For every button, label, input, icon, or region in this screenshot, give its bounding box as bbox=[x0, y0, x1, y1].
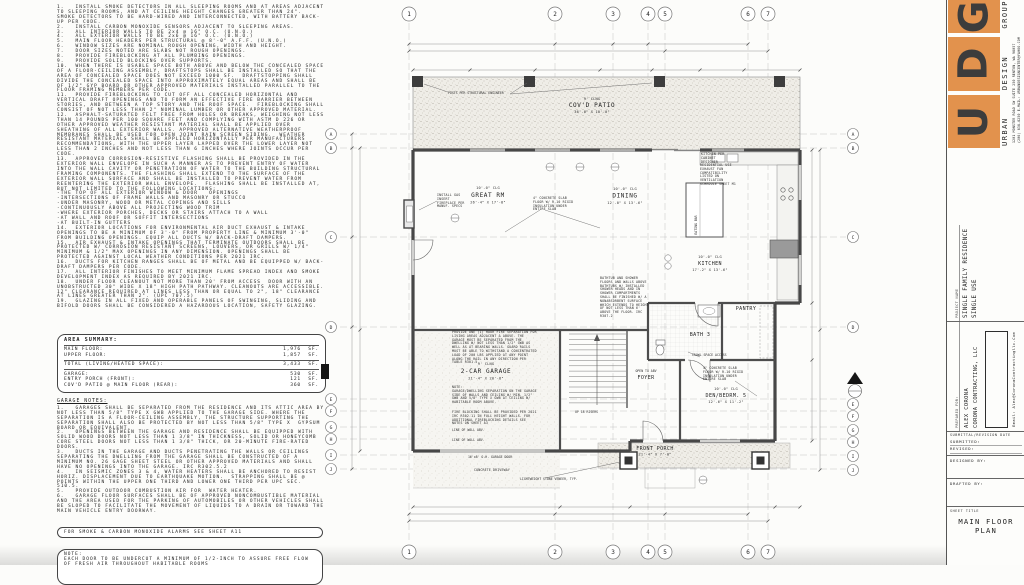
stone-note: LIGHTWEIGHT STONE VENEER, TYP. bbox=[520, 477, 578, 481]
fill-line bbox=[950, 453, 1022, 454]
porch-dims: 21'-4" X 7'-0" bbox=[638, 453, 671, 457]
bath3-label: BATH 3 bbox=[690, 332, 710, 338]
svg-text:5: 5 bbox=[663, 11, 667, 18]
line-abv-2: LINE OF WALL ABV. bbox=[452, 438, 485, 442]
svg-text:F: F bbox=[330, 409, 333, 415]
title-block-inner-line bbox=[959, 225, 960, 432]
svg-text:D: D bbox=[330, 325, 333, 331]
svg-text:4: 4 bbox=[646, 11, 650, 18]
posts-note: POSTS PER STRUCTURAL ENGINEER bbox=[448, 91, 504, 95]
svg-text:1: 1 bbox=[407, 11, 411, 18]
svg-text:E: E bbox=[330, 397, 333, 403]
submitted-label: SUBMITTED: bbox=[950, 439, 980, 444]
grid-bubbles-left: A B C D E F G H I J bbox=[326, 129, 337, 475]
garage-notes-panel: GARAGE NOTES: 1. GARAGES SHALL BE SEPARA… bbox=[57, 400, 325, 515]
pantry-label: PANTRY bbox=[736, 306, 756, 312]
dining-dims: 12'-0" X 13'-6" bbox=[607, 201, 642, 205]
svg-text:C: C bbox=[852, 235, 855, 241]
svg-text:J: J bbox=[330, 467, 333, 473]
logo-letter-d: D bbox=[951, 47, 997, 80]
dining-clg: 10'-0" CLG bbox=[613, 187, 637, 191]
stamp-box bbox=[985, 331, 1008, 428]
sheet-title-label: SHEET TITLE bbox=[950, 509, 979, 513]
logo-square-g: G bbox=[948, 0, 1000, 33]
svg-text:I: I bbox=[852, 454, 855, 460]
svg-text:7: 7 bbox=[766, 549, 770, 556]
svg-text:B: B bbox=[852, 146, 855, 152]
patio-clg-label: 9' CLNG bbox=[584, 97, 601, 101]
kitchen-clg: 10'-0" CLG bbox=[698, 255, 722, 259]
divider bbox=[64, 345, 319, 346]
fireplace bbox=[404, 200, 414, 228]
general-notes-text: 1. INSTALL SMOKE DETECTORS IN ALL SLEEPI… bbox=[57, 6, 325, 310]
den-clg: 10'-0" CLG bbox=[714, 387, 738, 391]
area-row: UPPER FLOOR: 1,857 SF. bbox=[64, 353, 319, 359]
garage-door bbox=[440, 450, 545, 452]
kitchen-label: KITCHEN bbox=[698, 261, 722, 267]
project-use: SINGLE USE bbox=[972, 258, 978, 318]
client-name: ALEX CORONA bbox=[964, 348, 970, 428]
divider bbox=[947, 506, 1024, 507]
svg-text:2: 2 bbox=[553, 11, 557, 18]
area-total-row: TOTAL (LIVING/HEATED SPACE): 3,433 SF. bbox=[64, 362, 319, 368]
general-notes-panel: 1. INSTALL SMOKE DETECTORS IN ALL SLEEPI… bbox=[57, 6, 325, 310]
area-summary-box: AREA SUMMARY: MAIN FLOOR: 1,976 SF. UPPE… bbox=[57, 334, 326, 393]
svg-text:A: A bbox=[852, 132, 855, 138]
grid-bubbles-top: 1 2 3 4 5 6 7 bbox=[402, 7, 775, 21]
svg-text:J: J bbox=[852, 468, 855, 474]
section-cut-marker bbox=[321, 364, 329, 379]
pantry-shelves bbox=[760, 306, 773, 358]
svg-text:D: D bbox=[852, 325, 855, 331]
grid-bubbles-right: A B C D E F G H I J bbox=[848, 129, 859, 476]
greatrm-clg: 10'-0" CLG bbox=[476, 186, 500, 190]
garage-notes-title: GARAGE NOTES: bbox=[57, 400, 325, 405]
garage-door-note: 16'x8' O.H. GARAGE DOOR bbox=[468, 455, 512, 459]
den-label: DEN/BEDRM. 5 bbox=[706, 393, 747, 399]
logo-address-2: (206) 838-8250 E-MAIL: URBANDESIGNCENTER… bbox=[1017, 0, 1021, 143]
garage-label: 2-CAR GARAGE bbox=[461, 368, 512, 375]
garage-clg: 9' CLNG bbox=[478, 362, 495, 366]
foyer-note: OPEN TO ABV bbox=[635, 369, 656, 373]
submittal-label: SUBMITTAL/REVISION DATE bbox=[950, 433, 1011, 437]
svg-text:3: 3 bbox=[611, 11, 615, 18]
svg-text:6: 6 bbox=[746, 549, 750, 556]
svg-text:2: 2 bbox=[553, 549, 557, 556]
project-name: SINGLE FAMILY RESIDENCE bbox=[963, 222, 969, 318]
kitchen-island bbox=[686, 183, 723, 237]
divider bbox=[947, 478, 1024, 479]
walkway bbox=[645, 468, 695, 488]
svg-text:H: H bbox=[852, 440, 855, 446]
client-company: CORONA CONTRACTING, LLC bbox=[973, 324, 979, 428]
svg-text:1: 1 bbox=[407, 549, 411, 556]
eating-bar-label: EATING BAR bbox=[694, 215, 698, 234]
greatrm-label: GREAT RM bbox=[471, 192, 505, 199]
logo-square-u: U bbox=[948, 95, 1000, 148]
sheet-title: MAIN FLOOR PLAN bbox=[947, 518, 1024, 535]
section-marker-right bbox=[847, 372, 863, 398]
logo-letter-u: U bbox=[951, 105, 997, 137]
client-email: Email: Alex@CoronaContractingllc.Com bbox=[1011, 317, 1016, 427]
kitchen-dims: 17'-2" X 13'-6" bbox=[692, 268, 727, 272]
svg-text:G: G bbox=[330, 425, 333, 431]
revised-label: REVISED: bbox=[950, 446, 974, 451]
svg-text:7: 7 bbox=[766, 11, 770, 18]
area-summary-title: AREA SUMMARY: bbox=[64, 337, 319, 343]
patio-label: COV'D PATIO bbox=[569, 102, 615, 109]
garage-slab bbox=[415, 332, 558, 449]
area-row: COV'D PATIO @ MAIN FLOOR (REAR): 360 SF. bbox=[64, 383, 319, 389]
greatrm-dims: 26'-4" X 17'-8" bbox=[470, 201, 505, 205]
svg-text:B: B bbox=[330, 146, 333, 152]
project-name-label: PROJECT NAME bbox=[955, 260, 959, 318]
svg-text:6: 6 bbox=[746, 11, 750, 18]
svg-text:E: E bbox=[852, 402, 855, 408]
porch-label: FRONT PORCH bbox=[636, 446, 674, 452]
svg-text:C: C bbox=[330, 235, 333, 241]
drafted-by-label: DRAFTED BY: bbox=[950, 481, 983, 486]
alarm-note-text: FOR SMOKE & CARBON MONOXIDE ALARMS SEE S… bbox=[64, 530, 316, 535]
designed-by-label: DESIGNED BY: bbox=[950, 458, 987, 463]
alarm-note-box: FOR SMOKE & CARBON MONOXIDE ALARMS SEE S… bbox=[57, 527, 323, 538]
crawl-note: CRAWL SPACE ACCESS bbox=[692, 353, 727, 357]
svg-text:5: 5 bbox=[663, 549, 667, 556]
undercut-note-box: NOTE: EACH DOOR TO BE UNDERCUT A MINIMUM… bbox=[57, 549, 323, 585]
foyer-label: FOYER bbox=[637, 375, 655, 381]
line-abv-1: LINE OF WALL ABV. bbox=[452, 428, 485, 432]
svg-text:I: I bbox=[330, 453, 333, 459]
stairs bbox=[569, 334, 626, 405]
up-risers-note: UP 18 RISERS bbox=[575, 410, 598, 414]
svg-text:3: 3 bbox=[611, 549, 615, 556]
svg-text:H: H bbox=[330, 437, 333, 443]
floor-plan-drawing: 1 2 3 4 5 6 7 1 2 3 4 5 6 7 A B C bbox=[318, 0, 950, 565]
title-block: G D U URBAN DESIGN GROUP 1201 MONSTER RO… bbox=[946, 0, 1024, 565]
svg-text:4: 4 bbox=[646, 549, 650, 556]
logo-address-1: 1201 MONSTER ROAD SW SUITE 250 RENTON, W… bbox=[1012, 0, 1016, 143]
den-dims: 12'-6" X 11'-2" bbox=[708, 400, 743, 404]
divider bbox=[947, 455, 1024, 456]
patio-dims: 36'-0" X 10'-0" bbox=[574, 110, 609, 114]
garage-notes-text: 1. GARAGES SHALL BE SEPARATED FROM THE R… bbox=[57, 407, 325, 515]
logo-letter-g: G bbox=[951, 0, 997, 33]
svg-text:A: A bbox=[330, 132, 333, 138]
svg-text:F: F bbox=[852, 414, 855, 420]
garage-dims: 21'-4" X 20'-8" bbox=[468, 377, 503, 381]
svg-text:G: G bbox=[852, 428, 855, 434]
dining-label: DINING bbox=[612, 193, 637, 200]
grid-bubbles-bottom: 1 2 3 4 5 6 7 bbox=[402, 545, 775, 559]
divider bbox=[64, 369, 319, 370]
divider bbox=[64, 360, 319, 361]
prepared-for-label: PREPARED FOR: bbox=[955, 373, 959, 428]
divider bbox=[947, 431, 1024, 432]
logo-square-d: D bbox=[948, 37, 1000, 91]
